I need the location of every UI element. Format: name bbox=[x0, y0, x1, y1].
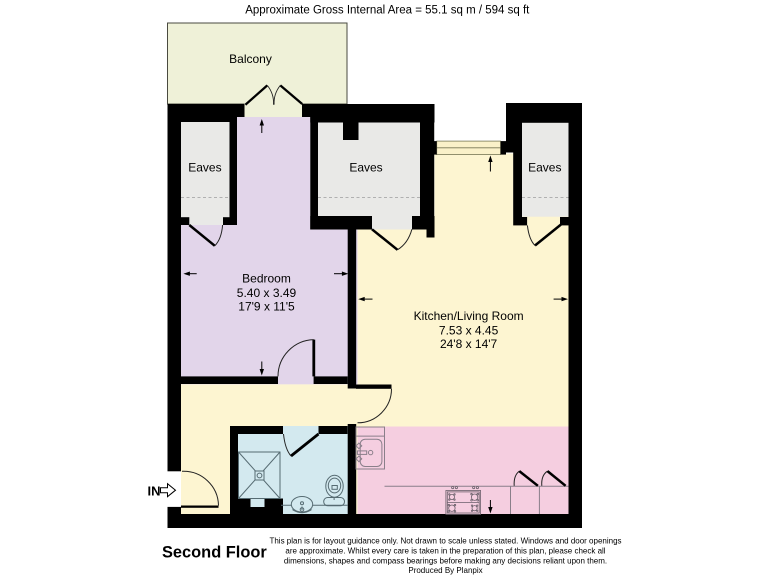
svg-text:5.40 x 3.49: 5.40 x 3.49 bbox=[237, 286, 297, 300]
svg-text:Second Floor: Second Floor bbox=[162, 544, 267, 562]
svg-text:IN: IN bbox=[148, 484, 161, 499]
svg-text:Bedroom: Bedroom bbox=[242, 272, 291, 286]
svg-text:Approximate Gross Internal Are: Approximate Gross Internal Area = 55.1 s… bbox=[245, 5, 530, 17]
svg-text:Kitchen/Living Room: Kitchen/Living Room bbox=[414, 309, 524, 323]
svg-text:17'9 x 11'5: 17'9 x 11'5 bbox=[238, 300, 295, 314]
svg-text:7.53 x 4.45: 7.53 x 4.45 bbox=[439, 323, 499, 337]
svg-text:Eaves: Eaves bbox=[349, 160, 382, 174]
svg-text:This plan is for layout guidan: This plan is for layout guidance only. N… bbox=[269, 536, 621, 545]
svg-text:Balcony: Balcony bbox=[229, 52, 272, 66]
svg-text:Produced By Planpix: Produced By Planpix bbox=[408, 566, 482, 575]
svg-text:dimensions, shapes and compass: dimensions, shapes and compass bearings … bbox=[284, 556, 607, 565]
svg-text:24'8 x 14'7: 24'8 x 14'7 bbox=[440, 337, 498, 351]
svg-text:Eaves: Eaves bbox=[528, 160, 561, 174]
svg-text:Eaves: Eaves bbox=[188, 160, 221, 174]
svg-text:are approximate. Whilst every: are approximate. Whilst every care is ta… bbox=[285, 546, 605, 555]
